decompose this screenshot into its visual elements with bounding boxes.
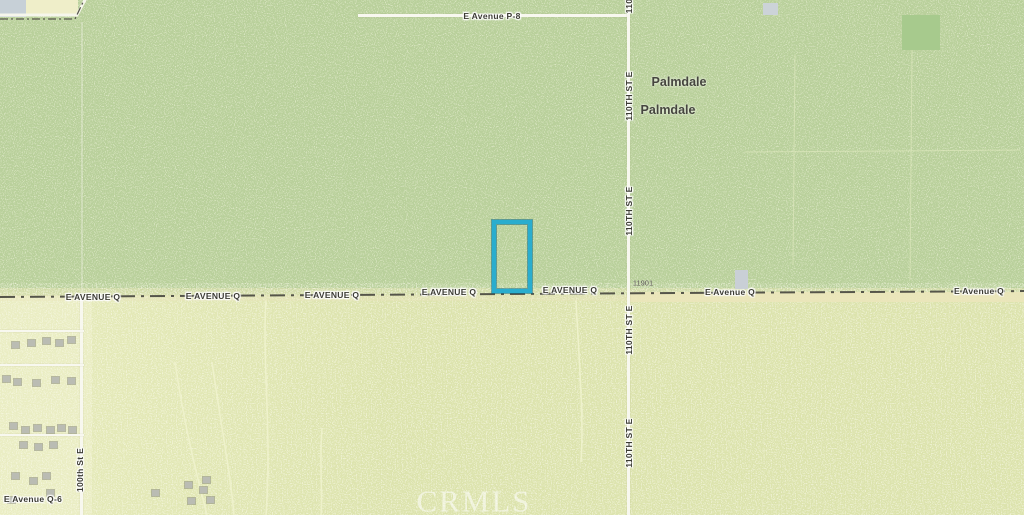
street-label: E AVENUE Q — [305, 291, 359, 300]
street-label: 100th St E — [76, 448, 85, 492]
street-label: 110TH ST E — [625, 186, 634, 235]
street-label: E AVENUE Q — [66, 293, 120, 302]
street-label: E AVENUE Q — [422, 288, 476, 297]
street-label: E AVENUE Q — [543, 286, 597, 295]
street-label: 11901 — [633, 279, 653, 287]
street-label: E Avenue Q-6 — [4, 495, 62, 504]
labels-layer: E Avenue P-8110110TH ST E110TH ST E110TH… — [0, 0, 1024, 515]
city-label: Palmdale — [652, 76, 707, 89]
street-label: E AVENUE Q — [186, 292, 240, 301]
street-label: E Avenue P-8 — [463, 12, 520, 21]
street-label: 110TH ST E — [625, 71, 634, 120]
street-label: E Avenue Q — [705, 288, 755, 297]
street-label: 110TH ST E — [625, 418, 634, 467]
crmls-watermark: CRMLS — [416, 486, 531, 515]
street-label: 110 — [625, 0, 634, 13]
city-label: Palmdale — [641, 104, 696, 117]
map-canvas[interactable]: E Avenue P-8110110TH ST E110TH ST E110TH… — [0, 0, 1024, 515]
street-label: 110TH ST E — [625, 305, 634, 354]
street-label: E Avenue Q — [954, 287, 1004, 296]
